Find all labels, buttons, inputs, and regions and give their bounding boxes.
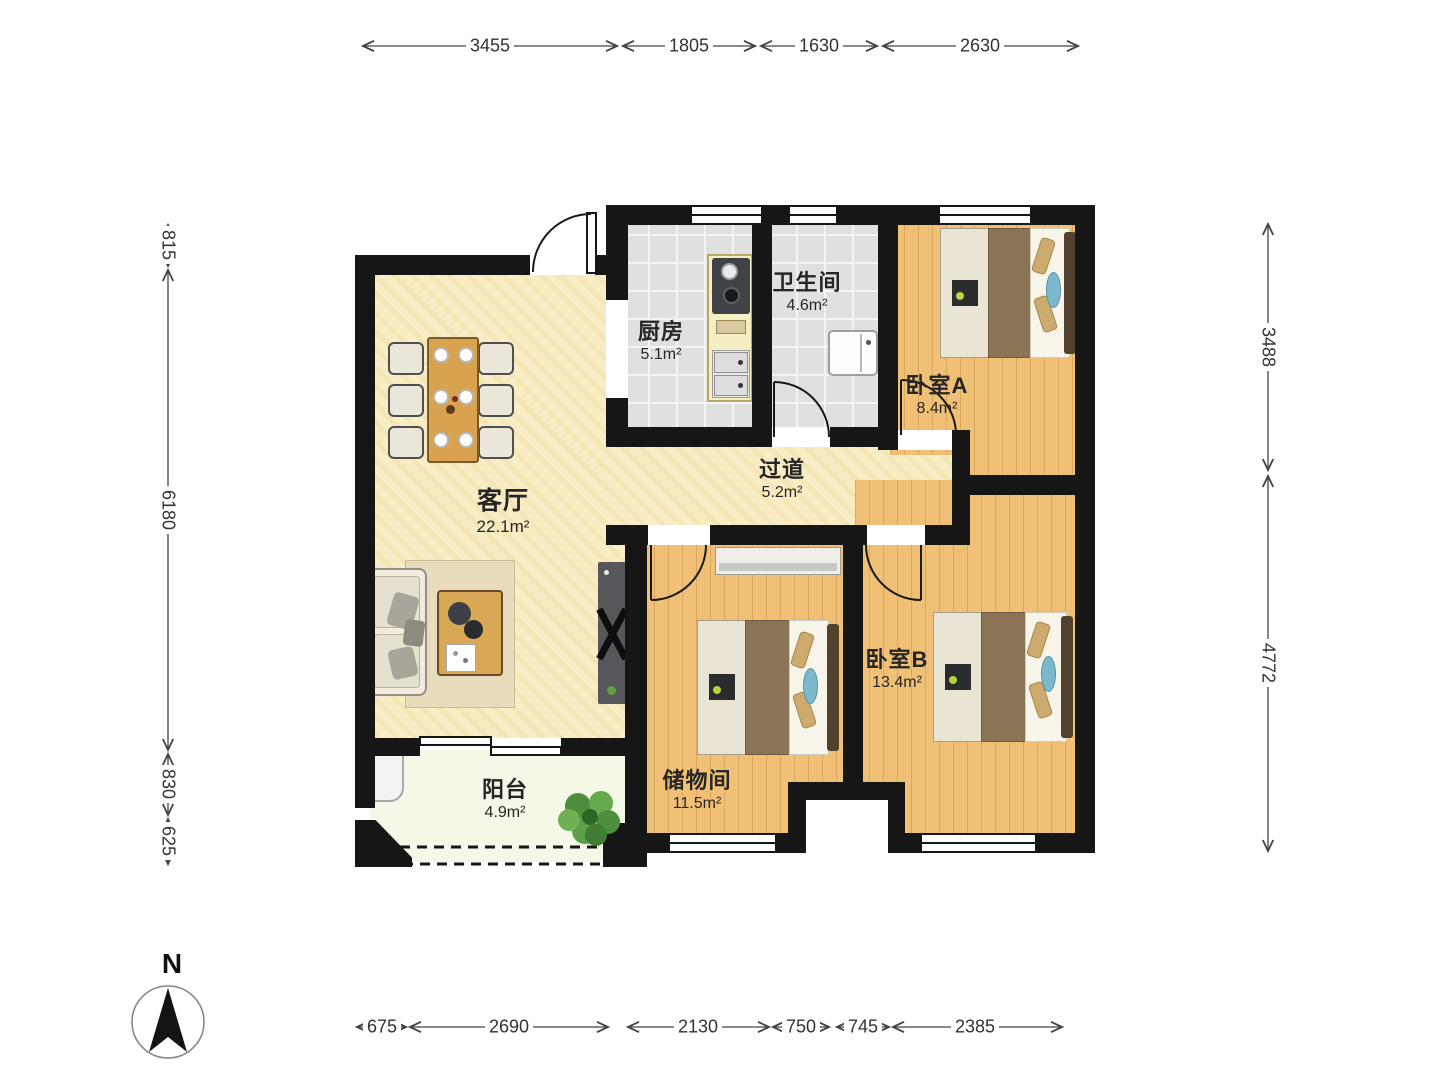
wall-balcony-top-left — [375, 738, 420, 756]
sink-dot — [738, 383, 743, 388]
plate — [433, 389, 449, 405]
bed-blanket — [981, 612, 1027, 742]
plate — [458, 389, 474, 405]
dim-bottom-5: 745 — [844, 1017, 882, 1038]
room-area: 4.6m² — [772, 297, 841, 315]
bed-cushion-blue — [1041, 656, 1056, 692]
room-area: 5.2m² — [759, 484, 805, 502]
room-label-bedroom-a: 卧室A 8.4m² — [906, 368, 969, 418]
dining-chair — [388, 384, 424, 417]
room-label-bathroom: 卫生间 4.6m² — [772, 265, 841, 315]
room-name: 卧室B — [866, 642, 929, 674]
balcony-sliding-door-panel — [419, 736, 492, 746]
dim-right-1: 3488 — [1258, 323, 1279, 371]
floor-plan-canvas: 客厅 22.1m² 厨房 5.1m² 卫生间 4.6m² 卧室A 8.4m² 过… — [0, 0, 1440, 1080]
tv-cabinet-plant — [607, 686, 616, 695]
storage-wardrobe-bar — [719, 563, 837, 571]
utility-notch-inset — [806, 800, 888, 853]
room-name: 厨房 — [638, 314, 684, 346]
stove-burner — [721, 263, 738, 280]
washer-panel-line — [860, 334, 862, 372]
dim-top-1: 3455 — [466, 36, 514, 57]
room-label-kitchen: 厨房 5.1m² — [638, 314, 684, 364]
bed-cushion-blue — [803, 668, 818, 704]
plate — [433, 347, 449, 363]
storage-tv-dot — [713, 686, 721, 694]
bed-headboard — [827, 624, 839, 751]
dining-chair — [388, 426, 424, 459]
bed-blanket — [745, 620, 791, 755]
room-name: 阳台 — [482, 772, 528, 804]
dining-chair — [478, 384, 514, 417]
bedroom-a-tv-dot — [956, 292, 964, 300]
wall-storage-bedroomb-divider — [843, 545, 863, 800]
window-bedroom-b — [920, 833, 1037, 853]
window-bedroom-a — [938, 205, 1032, 225]
entry-door-leaf — [586, 212, 597, 274]
dim-left-2: 6180 — [158, 486, 179, 534]
room-area: 22.1m² — [477, 517, 530, 537]
dim-left-1: 815 — [158, 226, 179, 264]
wall-balcony-corner-right — [603, 823, 641, 867]
plate — [458, 347, 474, 363]
counter-item — [716, 320, 746, 334]
tray-dot — [463, 658, 468, 663]
plate — [433, 432, 449, 448]
wall-bath-bedrooma-divider — [878, 225, 898, 450]
wall-exterior-left — [355, 255, 375, 808]
room-name: 卫生间 — [772, 265, 841, 297]
wall-exterior-right — [1075, 205, 1095, 853]
room-name: 卧室A — [906, 368, 969, 400]
room-name: 客厅 — [477, 481, 530, 517]
storage-door-threshold — [648, 525, 710, 545]
room-label-living: 客厅 22.1m² — [477, 481, 530, 537]
dim-right-2: 4772 — [1258, 639, 1279, 687]
compass-north-label: N — [162, 948, 182, 980]
dining-chair — [478, 426, 514, 459]
room-name: 储物间 — [662, 763, 731, 795]
room-label-hallway: 过道 5.2m² — [759, 452, 805, 502]
room-name: 过道 — [759, 452, 805, 484]
dim-top-4: 2630 — [956, 36, 1004, 57]
coffee-table-bowl — [464, 620, 483, 639]
dim-top-2: 1805 — [665, 36, 713, 57]
bed-headboard — [1061, 616, 1073, 738]
tv-cabinet-dot — [604, 570, 609, 575]
dim-bottom-6: 2385 — [951, 1017, 999, 1038]
wall-hallway-bottom-b — [710, 525, 867, 545]
tray-dot — [453, 651, 458, 656]
wall-balcony-top-right — [561, 738, 640, 756]
bedroom-a-door-threshold — [898, 430, 952, 450]
window-kitchen — [690, 205, 763, 225]
dim-bottom-1: 675 — [363, 1017, 401, 1038]
dim-left-4: 625 — [158, 822, 179, 860]
room-label-balcony: 阳台 4.9m² — [482, 772, 528, 822]
wall-living-top-left — [355, 255, 530, 275]
room-area: 11.5m² — [662, 795, 731, 813]
wall-hallway-bottom-c — [925, 525, 970, 545]
coffee-table-tray — [446, 644, 476, 672]
dining-chair — [478, 342, 514, 375]
wall-kitchen-left-lower — [606, 400, 628, 447]
dim-bottom-2: 2690 — [485, 1017, 533, 1038]
compass-icon — [132, 986, 204, 1058]
washing-machine-icon — [828, 330, 878, 376]
room-area: 13.4m² — [866, 674, 929, 692]
room-label-storage: 储物间 11.5m² — [662, 763, 731, 813]
room-area: 5.1m² — [638, 346, 684, 364]
room-label-bedroom-b: 卧室B 13.4m² — [866, 642, 929, 692]
wall-bedroom-a-b-divider — [952, 475, 1095, 495]
bed-blanket — [988, 228, 1032, 358]
stove-burner — [723, 287, 740, 304]
room-area: 8.4m² — [906, 400, 969, 418]
table-decor — [446, 405, 455, 414]
balcony-sliding-door-panel — [490, 746, 562, 756]
dim-top-3: 1630 — [795, 36, 843, 57]
wall-hallway-top-b — [830, 427, 898, 447]
bedroom-b-tv-dot — [949, 676, 957, 684]
dining-chair — [388, 342, 424, 375]
window-bathroom — [788, 205, 838, 225]
sofa-pillow — [402, 619, 425, 647]
window-storage — [668, 833, 777, 853]
wall-kitchen-bath-divider — [752, 225, 772, 447]
wall-kitchen-left-upper — [606, 205, 628, 300]
bed-cushion-blue — [1046, 272, 1061, 308]
sink-dot — [738, 360, 743, 365]
table-decor — [452, 396, 458, 402]
dim-bottom-3: 2130 — [674, 1017, 722, 1038]
dim-left-3: 830 — [158, 765, 179, 803]
bathroom-floor — [768, 220, 883, 432]
bedroom-b-door-threshold — [867, 525, 925, 545]
wall-hallway-top-a — [628, 427, 772, 447]
washer-knob — [866, 340, 871, 345]
plate — [458, 432, 474, 448]
bathroom-door-threshold — [772, 427, 830, 447]
wall-storage-left — [625, 525, 647, 867]
kitchen-opening — [606, 298, 628, 400]
dim-bottom-4: 750 — [782, 1017, 820, 1038]
room-area: 4.9m² — [482, 804, 528, 822]
